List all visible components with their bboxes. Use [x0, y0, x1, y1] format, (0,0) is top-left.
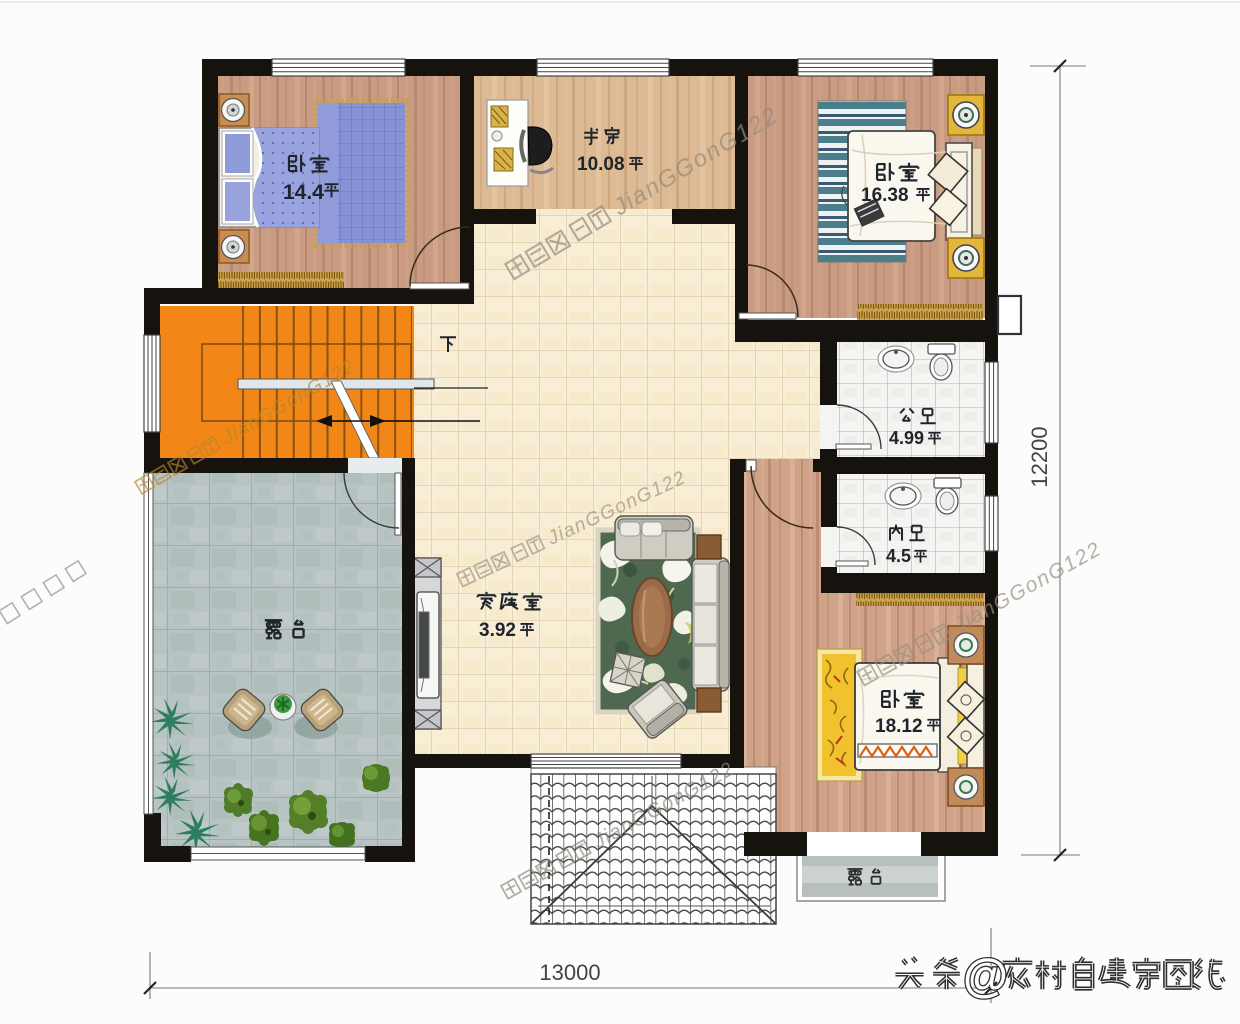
svg-text:14.4: 14.4 — [283, 181, 324, 204]
svg-text:4.5: 4.5 — [886, 546, 911, 566]
svg-text:4.99: 4.99 — [889, 428, 924, 448]
svg-text:13000: 13000 — [539, 960, 600, 985]
svg-text:16.38: 16.38 — [861, 185, 909, 206]
svg-text:18.12: 18.12 — [875, 716, 923, 737]
svg-text:@: @ — [963, 949, 1008, 1001]
svg-text:12200: 12200 — [1027, 426, 1052, 487]
svg-text:3.92: 3.92 — [479, 620, 516, 641]
svg-text:10.08: 10.08 — [577, 154, 625, 175]
